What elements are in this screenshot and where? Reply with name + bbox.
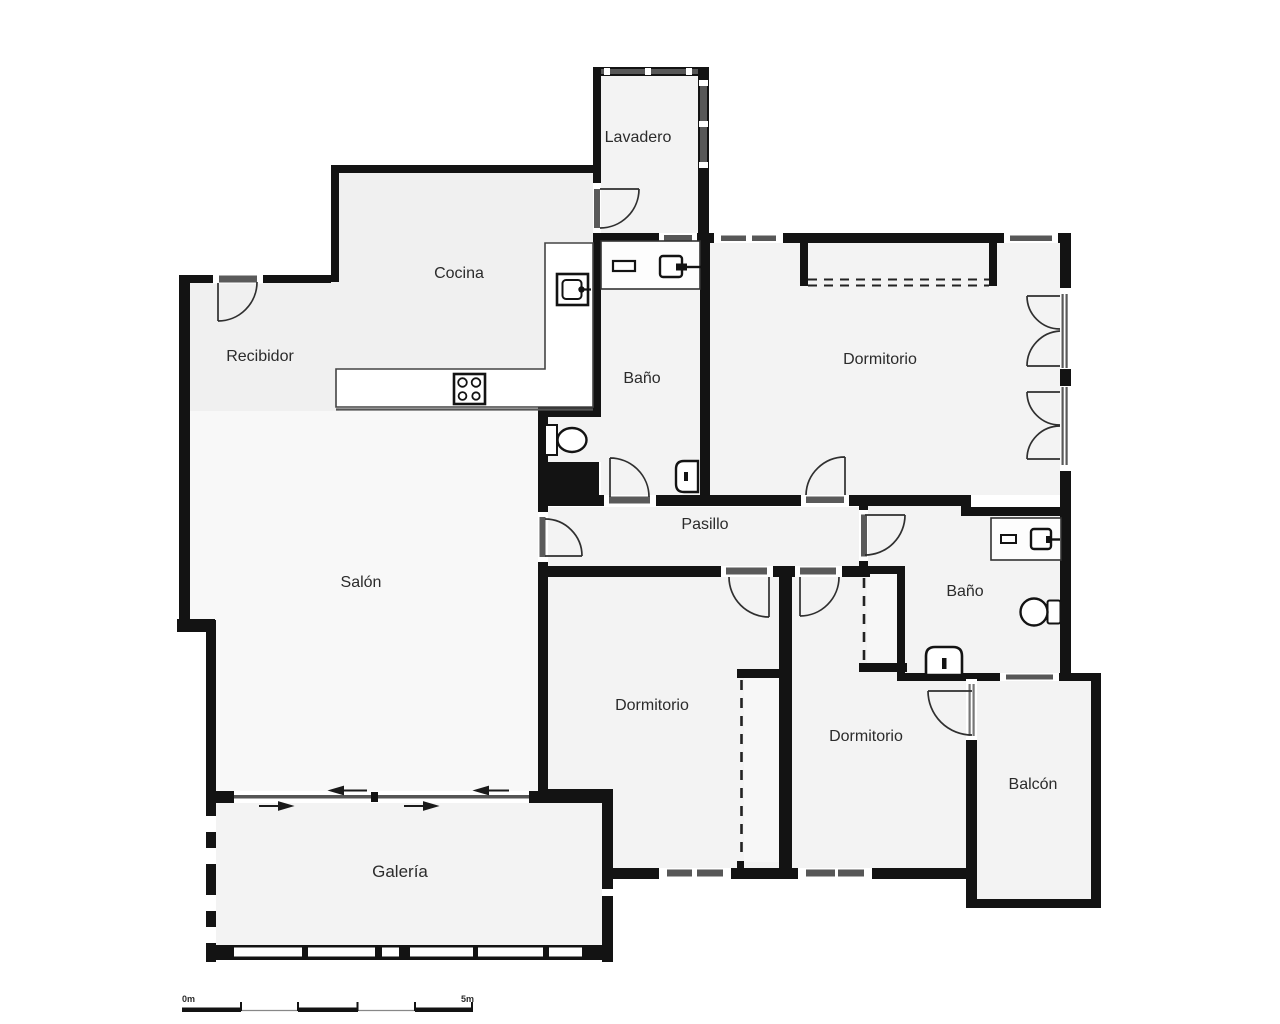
svg-text:Pasillo: Pasillo bbox=[681, 516, 728, 533]
svg-text:Salón: Salón bbox=[341, 574, 382, 591]
svg-text:0m: 0m bbox=[182, 994, 195, 1004]
svg-text:Baño: Baño bbox=[946, 583, 983, 600]
svg-text:Lavadero: Lavadero bbox=[605, 129, 672, 146]
svg-text:Cocina: Cocina bbox=[434, 265, 484, 282]
svg-text:Balcón: Balcón bbox=[1009, 776, 1058, 793]
svg-text:Galería: Galería bbox=[372, 862, 428, 881]
svg-text:Baño: Baño bbox=[623, 370, 660, 387]
svg-text:5m: 5m bbox=[461, 994, 474, 1004]
svg-text:Dormitorio: Dormitorio bbox=[615, 697, 689, 714]
svg-text:Dormitorio: Dormitorio bbox=[829, 728, 903, 745]
svg-text:Dormitorio: Dormitorio bbox=[843, 351, 917, 368]
svg-text:Recibidor: Recibidor bbox=[226, 348, 294, 365]
